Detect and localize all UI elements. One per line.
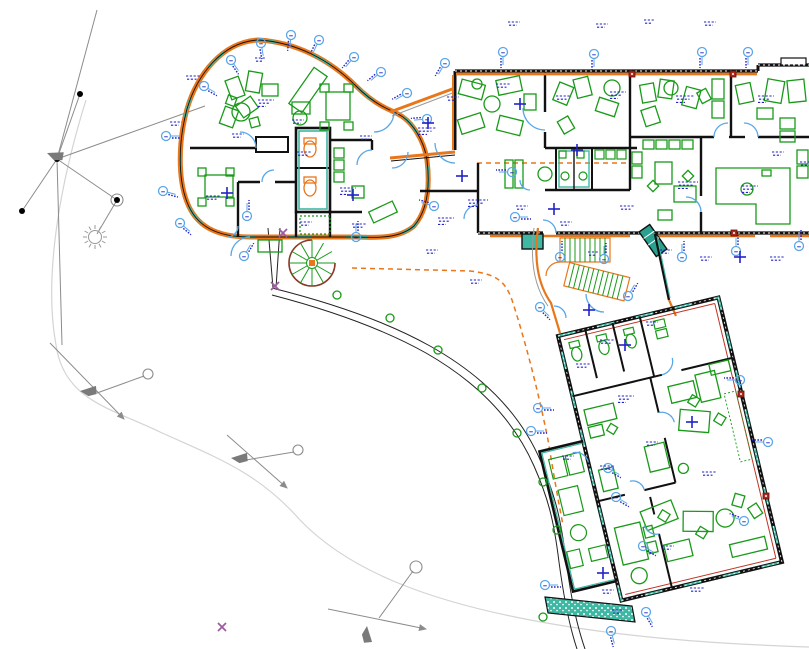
reference-tag (744, 48, 753, 69)
reference-tag (612, 493, 629, 507)
planting-marker (478, 384, 486, 392)
dimension-text-block (508, 22, 520, 25)
blob-partition-walls (190, 128, 372, 237)
dimension-text-block (360, 136, 372, 139)
reference-tag (511, 213, 532, 222)
reference-tag (240, 243, 254, 260)
reference-tag (310, 36, 323, 54)
reference-tag (678, 241, 687, 262)
survey-link-line (379, 571, 413, 618)
survey-sight-line (227, 435, 287, 488)
stairhall-door-swings (554, 294, 604, 318)
dimension-text-block (690, 588, 704, 591)
dimension-text-block (620, 206, 634, 209)
reference-tag (159, 187, 178, 198)
wingC-fixtures (569, 319, 669, 362)
column-red-marker (763, 493, 769, 499)
reference-tag (732, 235, 741, 256)
reference-tag (367, 68, 385, 81)
dimension-text-block (556, 96, 570, 99)
reference-tag (392, 89, 411, 100)
survey-point (114, 197, 120, 203)
reference-tag (342, 53, 358, 68)
south-east-wing (514, 297, 782, 611)
reference-tag (600, 243, 609, 264)
survey-point (77, 91, 83, 97)
dimension-text-block (742, 186, 758, 192)
survey-sight-line (328, 609, 426, 629)
dimension-text-block (418, 128, 436, 134)
reference-tag (642, 608, 653, 627)
dimension-text-block (560, 222, 572, 225)
reference-tag (607, 627, 616, 647)
setting-out-x-marker (218, 623, 226, 631)
grid-cross-marker (422, 117, 434, 129)
grid-cross-marker (619, 339, 631, 351)
planting-marker (539, 613, 547, 621)
dimension-text-block (702, 472, 716, 475)
planting-marker (333, 291, 341, 299)
reference-tag (499, 48, 508, 69)
reference-tag (435, 59, 449, 76)
grid-cross-marker (686, 416, 698, 428)
reference-tag (243, 200, 252, 221)
dimension-text-block (576, 364, 590, 367)
floor-plan-drawing (0, 0, 809, 649)
reference-tag (227, 56, 239, 75)
dimension-text-block (438, 218, 454, 224)
survey-network-line (57, 159, 62, 345)
survey-network-line (57, 10, 97, 159)
dashed-line-spiral-to-wing (352, 268, 563, 525)
dimension-text-block (300, 222, 312, 225)
survey-network-line (57, 94, 80, 159)
survey-network-line (57, 159, 117, 200)
dimension-text-block (602, 590, 614, 593)
survey-target-circle (143, 369, 153, 379)
dimension-text-block (170, 122, 182, 125)
column-red-marker (730, 71, 736, 77)
dimension-text-block (646, 322, 658, 325)
tree-sun-symbol (83, 225, 107, 249)
grid-cross-marker (548, 203, 560, 215)
reference-tag (527, 427, 548, 436)
dimension-text-block (704, 22, 716, 25)
grid-cross-marker (597, 567, 609, 579)
dimension-text-block (426, 250, 438, 253)
west-curved-wing (180, 40, 455, 256)
grid-cross-marker (734, 251, 746, 263)
survey-link-line (97, 376, 144, 393)
dimension-text-block (770, 257, 784, 260)
dimension-text-block (352, 224, 366, 227)
wc-block (556, 148, 626, 190)
dimension-text-block (644, 20, 654, 23)
entrance-steps (639, 225, 667, 257)
survey-network (19, 10, 426, 646)
survey-network-line (22, 159, 57, 211)
survey-target-circle (410, 561, 422, 573)
grid-cross-marker (571, 144, 583, 156)
column-red-marker (738, 391, 744, 397)
dimension-text-block (676, 96, 694, 102)
grid-cross-marker (456, 170, 468, 182)
reference-tag (200, 82, 217, 96)
survey-point (19, 208, 25, 214)
reference-tag (534, 404, 555, 413)
dimension-text-block (596, 24, 608, 27)
planting-marker (513, 429, 521, 437)
planting-marker (386, 314, 394, 322)
spiral-stair (289, 240, 335, 286)
stair-flight-lower (564, 263, 630, 301)
stair-flight-upper (560, 238, 610, 262)
reference-tag (624, 283, 638, 300)
dimension-text-block (772, 152, 784, 155)
dimension-text-block (258, 100, 274, 106)
dimension-text-block (496, 84, 510, 87)
reference-tag (541, 581, 562, 590)
dimension-text-block (700, 257, 712, 260)
dimension-text-block (600, 340, 614, 343)
reference-tag (590, 50, 599, 71)
dimension-text-block (618, 396, 634, 402)
site-survey-layer (19, 10, 809, 649)
wingC-partitions (558, 297, 782, 600)
reference-tag (176, 219, 191, 235)
planting-marker (434, 346, 442, 354)
cad-floor-plan-canvas[interactable] (0, 0, 809, 649)
north-east-wing (420, 58, 809, 257)
dimension-text-block (232, 134, 244, 137)
column-red-marker (731, 230, 737, 236)
survey-target-circle (293, 445, 303, 455)
survey-station-flag (357, 626, 376, 646)
dimension-text-block (516, 206, 528, 209)
dimension-text-block (255, 58, 265, 61)
grid-cross-marker (583, 304, 595, 316)
column-red-marker (629, 71, 635, 77)
survey-sight-line (50, 343, 124, 419)
dimension-text-block (678, 182, 698, 188)
wingB-furniture (457, 76, 808, 224)
survey-station-flag (231, 449, 251, 468)
reference-tag (698, 48, 707, 69)
dimension-text-block (470, 280, 482, 283)
footpath-inner-edge (272, 295, 577, 649)
